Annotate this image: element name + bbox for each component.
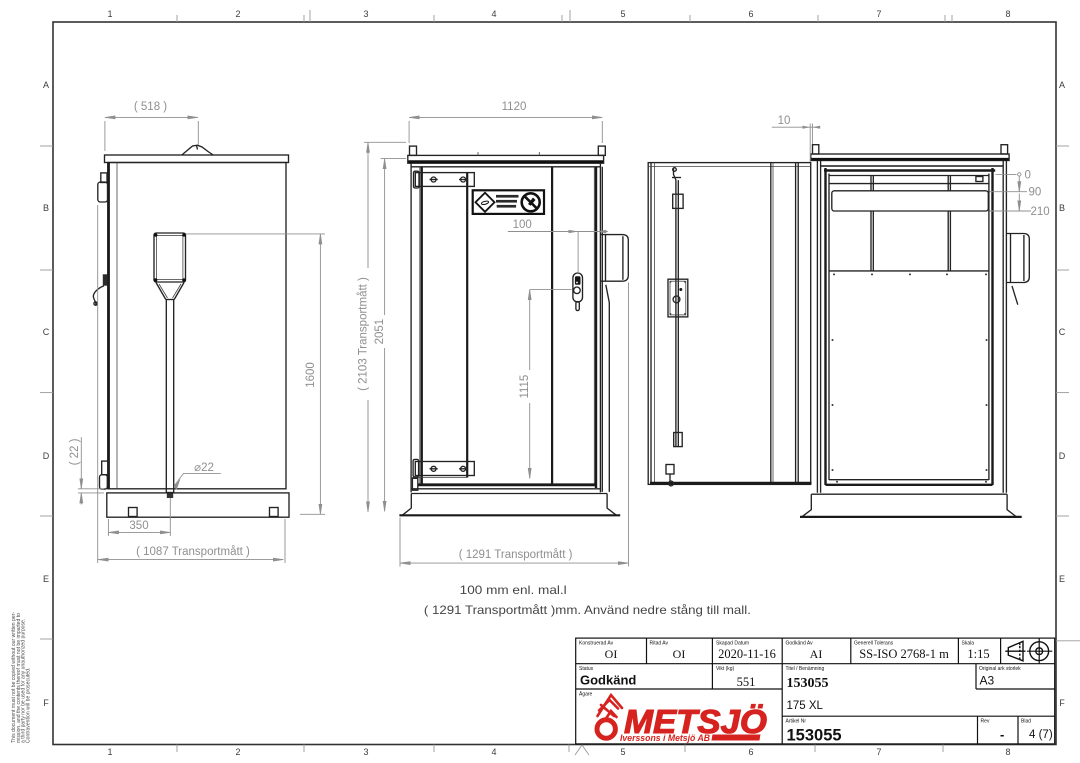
svg-text:Godkänd: Godkänd xyxy=(580,673,636,688)
svg-text:3: 3 xyxy=(363,747,368,757)
svg-text:D: D xyxy=(1059,451,1066,461)
svg-text:153055: 153055 xyxy=(787,676,829,691)
svg-text:-: - xyxy=(1000,727,1004,742)
svg-text:7: 7 xyxy=(876,747,881,757)
svg-text:Iverssons i Metsjö AB: Iverssons i Metsjö AB xyxy=(620,733,710,744)
svg-text:B: B xyxy=(43,203,49,213)
svg-text:6: 6 xyxy=(748,747,753,757)
svg-text:⌀22: ⌀22 xyxy=(194,462,214,474)
svg-text:1120: 1120 xyxy=(502,101,527,113)
svg-text:Status: Status xyxy=(579,666,594,672)
svg-text:Original ark storlek: Original ark storlek xyxy=(979,666,1021,672)
svg-text:( 22 ): ( 22 ) xyxy=(69,438,81,465)
svg-text:4: 4 xyxy=(491,9,496,19)
svg-text:8: 8 xyxy=(1005,747,1010,757)
svg-text:A3: A3 xyxy=(980,674,995,688)
svg-text:OI: OI xyxy=(673,647,686,661)
svg-text:1: 1 xyxy=(107,9,112,19)
svg-text:1600: 1600 xyxy=(305,362,317,388)
svg-text:0: 0 xyxy=(1025,170,1031,182)
svg-text:( 1291 Transportmått ): ( 1291 Transportmått ) xyxy=(459,549,573,561)
svg-text:A: A xyxy=(43,80,49,90)
svg-text:B: B xyxy=(1059,203,1065,213)
svg-text:5: 5 xyxy=(620,747,625,757)
svg-text:( 518 ): ( 518 ) xyxy=(134,101,167,113)
svg-text:E: E xyxy=(1059,574,1065,584)
svg-text:4: 4 xyxy=(491,747,496,757)
svg-text:A: A xyxy=(1059,80,1065,90)
svg-text:F: F xyxy=(1059,698,1065,708)
svg-text:100: 100 xyxy=(513,219,532,231)
svg-text:Titel / Benämning: Titel / Benämning xyxy=(786,666,825,672)
svg-text:5: 5 xyxy=(620,9,625,19)
svg-text:10: 10 xyxy=(778,115,791,127)
svg-text:175 XL: 175 XL xyxy=(787,700,824,712)
svg-text:1115: 1115 xyxy=(519,375,531,399)
svg-text:8: 8 xyxy=(1005,9,1010,19)
svg-text:1:15: 1:15 xyxy=(967,647,989,661)
svg-text:Skapad Datum: Skapad Datum xyxy=(716,641,749,647)
svg-text:Rev: Rev xyxy=(981,719,990,725)
svg-text:AI: AI xyxy=(810,647,823,661)
svg-text:Artikel Nr: Artikel Nr xyxy=(786,719,807,725)
svg-text:100 mm enl. mal.l: 100 mm enl. mal.l xyxy=(460,583,567,597)
svg-text:1: 1 xyxy=(107,747,112,757)
svg-text:OI: OI xyxy=(605,647,618,661)
svg-text:Konstruerad Av: Konstruerad Av xyxy=(579,641,614,647)
svg-text:Godkänd Av: Godkänd Av xyxy=(786,641,814,647)
svg-text:3: 3 xyxy=(363,9,368,19)
svg-text:C: C xyxy=(1059,327,1066,337)
svg-text:90: 90 xyxy=(1029,187,1042,199)
svg-text:2: 2 xyxy=(235,9,240,19)
svg-text:551: 551 xyxy=(737,675,756,689)
svg-text:4 (7): 4 (7) xyxy=(1029,729,1053,741)
svg-text:( 1087 Transportmått ): ( 1087 Transportmått ) xyxy=(136,546,250,558)
svg-text:Ritad Av: Ritad Av xyxy=(650,641,669,647)
svg-text:Ägare: Ägare xyxy=(579,691,593,698)
svg-text:Contravention will be prosecut: Contravention will be prosecuted. xyxy=(25,668,31,743)
svg-text:2051: 2051 xyxy=(374,319,386,345)
svg-text:6: 6 xyxy=(748,9,753,19)
svg-text:( 1291 Transportmått )mm. Anvä: ( 1291 Transportmått )mm. Använd nedre s… xyxy=(424,603,751,617)
svg-text:2020-11-16: 2020-11-16 xyxy=(718,647,776,661)
svg-text:7: 7 xyxy=(876,9,881,19)
svg-text:( 2103 Transportmått ): ( 2103 Transportmått ) xyxy=(358,277,370,391)
svg-text:210: 210 xyxy=(1031,206,1050,218)
svg-text:F: F xyxy=(43,698,49,708)
svg-text:Vikt (kg): Vikt (kg) xyxy=(716,666,735,672)
svg-text:SS-ISO 2768-1 m: SS-ISO 2768-1 m xyxy=(859,647,949,661)
svg-text:2: 2 xyxy=(235,747,240,757)
svg-text:153055: 153055 xyxy=(787,727,842,745)
svg-text:Generell Tolerans: Generell Tolerans xyxy=(854,641,894,647)
svg-text:Skala: Skala xyxy=(962,641,975,647)
svg-text:Blad: Blad xyxy=(1021,719,1031,725)
svg-text:350: 350 xyxy=(129,520,148,532)
svg-text:E: E xyxy=(43,574,49,584)
svg-text:D: D xyxy=(43,451,50,461)
svg-text:C: C xyxy=(43,327,50,337)
